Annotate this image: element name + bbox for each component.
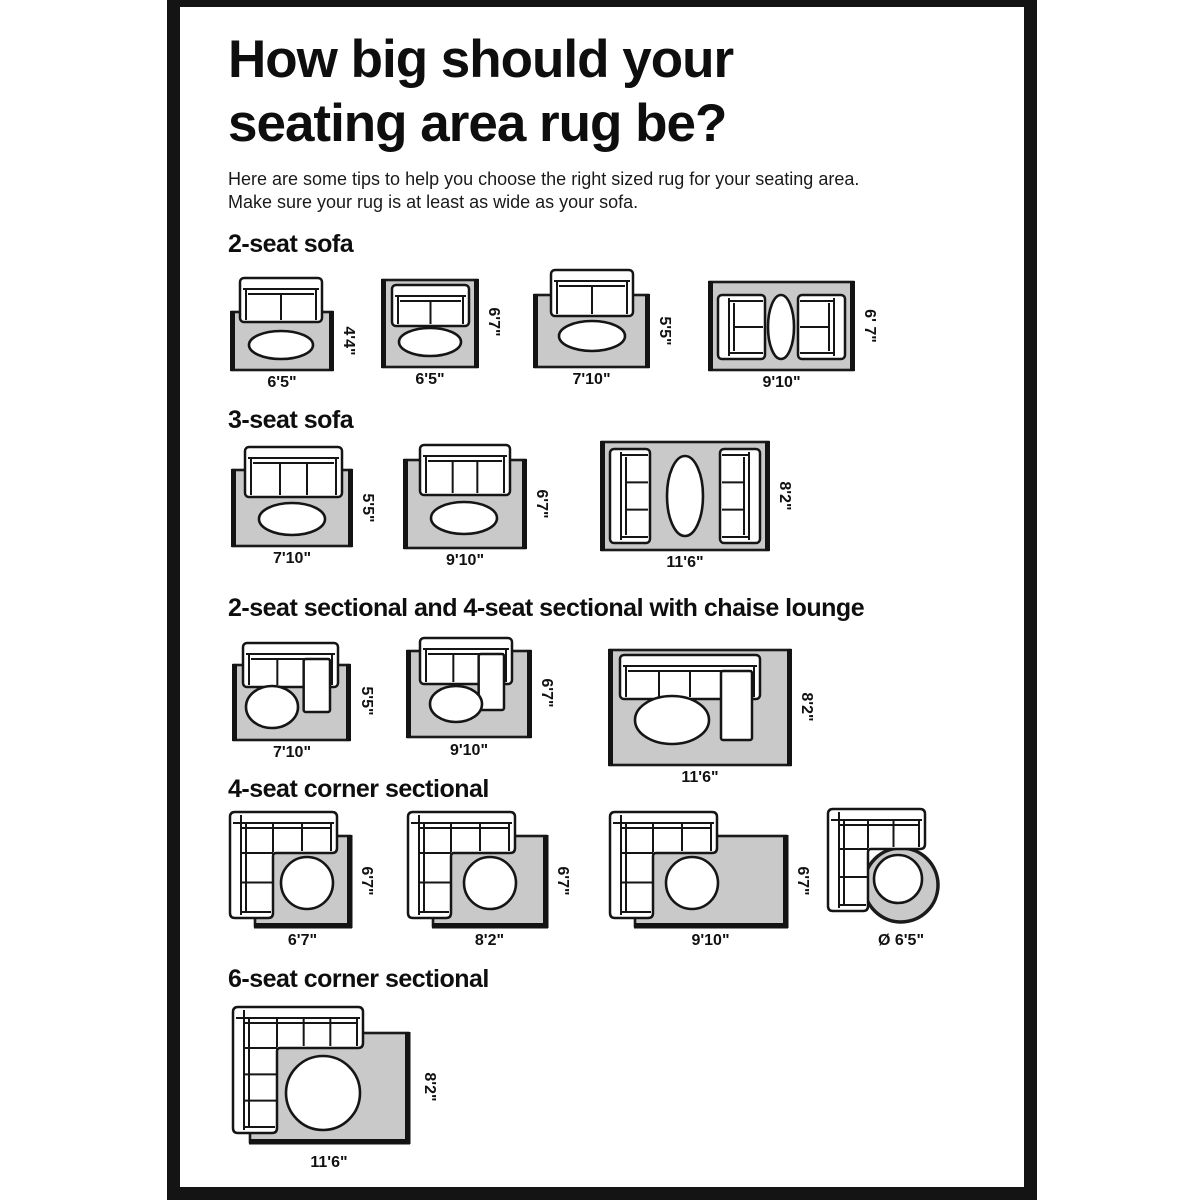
rug-height-label: 5'5"	[357, 686, 375, 715]
coffee-table-shape	[430, 686, 482, 722]
coffee-table-shape	[667, 456, 703, 536]
rug-width-label: 11'6"	[602, 554, 768, 572]
sofa-shape	[245, 447, 342, 497]
rug-height-label: 4'4"	[339, 326, 357, 355]
coffee-table-shape	[399, 328, 461, 356]
rug-height-label: 6'7"	[484, 307, 502, 336]
rug-height-label: 6'7"	[793, 866, 811, 895]
rug-figure	[406, 810, 546, 928]
chaise-shape	[721, 671, 752, 740]
page-title: How big should your seating area rug be?	[228, 28, 868, 156]
rug-height-label: 6'7"	[537, 678, 555, 707]
page-subtitle-line2: Make sure your rug is at least as wide a…	[228, 192, 638, 212]
rug-width-label: 7'10"	[233, 550, 351, 568]
coffee-table-shape	[559, 321, 625, 351]
rug-figure	[234, 643, 350, 740]
rug-diagram-sectional-1: 7'10" 5'5"	[234, 643, 350, 740]
coffee-table-shape	[431, 502, 497, 534]
rug-diagram-corner4-2: 8'2" 6'7"	[406, 810, 546, 928]
coffee-table-shape	[246, 686, 298, 728]
rug-figure	[404, 638, 530, 738]
rug-diagram-2seat-2: 6'5" 6'7"	[383, 280, 477, 367]
page-subtitle: Here are some tips to help you choose th…	[228, 168, 988, 214]
rug-width-label: Ø 6'5"	[856, 932, 946, 950]
rug-figure	[233, 1005, 413, 1150]
rug-width-label: 6'5"	[383, 371, 477, 389]
rug-height-label: 5'5"	[655, 316, 673, 345]
coffee-table-shape	[281, 857, 333, 909]
page-subtitle-line1: Here are some tips to help you choose th…	[228, 169, 859, 189]
rug-height-label: 6' 7"	[860, 309, 878, 343]
rug-height-label: 8'2"	[797, 692, 815, 721]
rug-diagram-2seat-4: 9'10" 6' 7"	[710, 282, 853, 370]
rug-width-label: 9'10"	[635, 932, 786, 950]
rug-width-label: 11'6"	[250, 1154, 408, 1172]
rug-width-label: 9'10"	[405, 552, 525, 570]
coffee-table-shape	[635, 696, 709, 744]
rug-width-label: 6'5"	[232, 374, 332, 392]
rug-figure	[228, 810, 350, 928]
rug-height-label: 5'5"	[358, 493, 376, 522]
rug-figure	[826, 806, 946, 928]
rug-height-label: 6'7"	[553, 866, 571, 895]
rug-width-label: 11'6"	[610, 769, 790, 787]
rug-height-label: 6'7"	[357, 866, 375, 895]
rug-figure	[383, 280, 477, 367]
rug-diagram-3seat-2: 9'10" 6'7"	[405, 445, 525, 548]
coffee-table-shape	[249, 331, 313, 359]
rug-width-label: 7'10"	[535, 371, 648, 389]
rug-figure	[535, 270, 648, 367]
section-heading-3-seat-sofa: 3-seat sofa	[228, 406, 353, 435]
rug-diagram-corner6-1: 11'6" 8'2"	[233, 1005, 413, 1150]
rug-diagram-3seat-1: 7'10" 5'5"	[233, 447, 351, 546]
page-title-line1: How big should your	[228, 30, 733, 89]
rug-diagram-corner4-3: 9'10" 6'7"	[608, 810, 786, 928]
rug-diagram-2seat-1: 6'5" 4'4"	[232, 276, 332, 370]
rug-diagram-corner4-1: 6'7" 6'7"	[228, 810, 350, 928]
coffee-table-shape	[464, 857, 516, 909]
section-heading-6-seat-corner: 6-seat corner sectional	[228, 965, 489, 994]
rug-diagram-sectional-3: 11'6" 8'2"	[610, 645, 790, 765]
coffee-table-shape	[666, 857, 718, 909]
rug-width-label: 6'7"	[255, 932, 350, 950]
rug-width-label: 9'10"	[710, 374, 853, 392]
rug-figure	[608, 810, 786, 928]
sofa-shape	[420, 445, 510, 495]
sofa-shape	[610, 449, 650, 543]
coffee-table-shape	[874, 855, 922, 903]
section-heading-4-seat-corner: 4-seat corner sectional	[228, 775, 489, 804]
rug-diagram-2seat-3: 7'10" 5'5"	[535, 270, 648, 367]
sofa-shape	[720, 449, 760, 543]
canvas: How big should your seating area rug be?…	[0, 0, 1200, 1200]
rug-figure	[602, 442, 768, 550]
coffee-table-shape	[259, 503, 325, 535]
rug-width-label: 9'10"	[408, 742, 530, 760]
rug-height-label: 8'2"	[775, 481, 793, 510]
chaise-shape	[304, 659, 330, 712]
rug-figure	[405, 445, 525, 548]
rug-figure	[232, 276, 332, 370]
section-heading-2-seat-sofa: 2-seat sofa	[228, 230, 353, 259]
coffee-table-shape	[286, 1056, 360, 1130]
rug-height-label: 8'2"	[420, 1072, 438, 1101]
rug-figure	[610, 645, 790, 765]
rug-width-label: 7'10"	[234, 744, 350, 762]
rug-diagram-3seat-3: 11'6" 8'2"	[602, 442, 768, 550]
rug-figure	[233, 447, 351, 546]
page-title-line2: seating area rug be?	[228, 94, 726, 153]
rug-figure	[710, 282, 853, 370]
rug-height-label: 6'7"	[532, 489, 550, 518]
rug-diagram-corner4-round: Ø 6'5"	[826, 806, 946, 928]
rug-diagram-sectional-2: 9'10" 6'7"	[404, 638, 530, 738]
coffee-table-shape	[768, 295, 794, 359]
section-heading-sectional-chaise: 2-seat sectional and 4-seat sectional wi…	[228, 594, 864, 623]
rug-width-label: 8'2"	[433, 932, 546, 950]
